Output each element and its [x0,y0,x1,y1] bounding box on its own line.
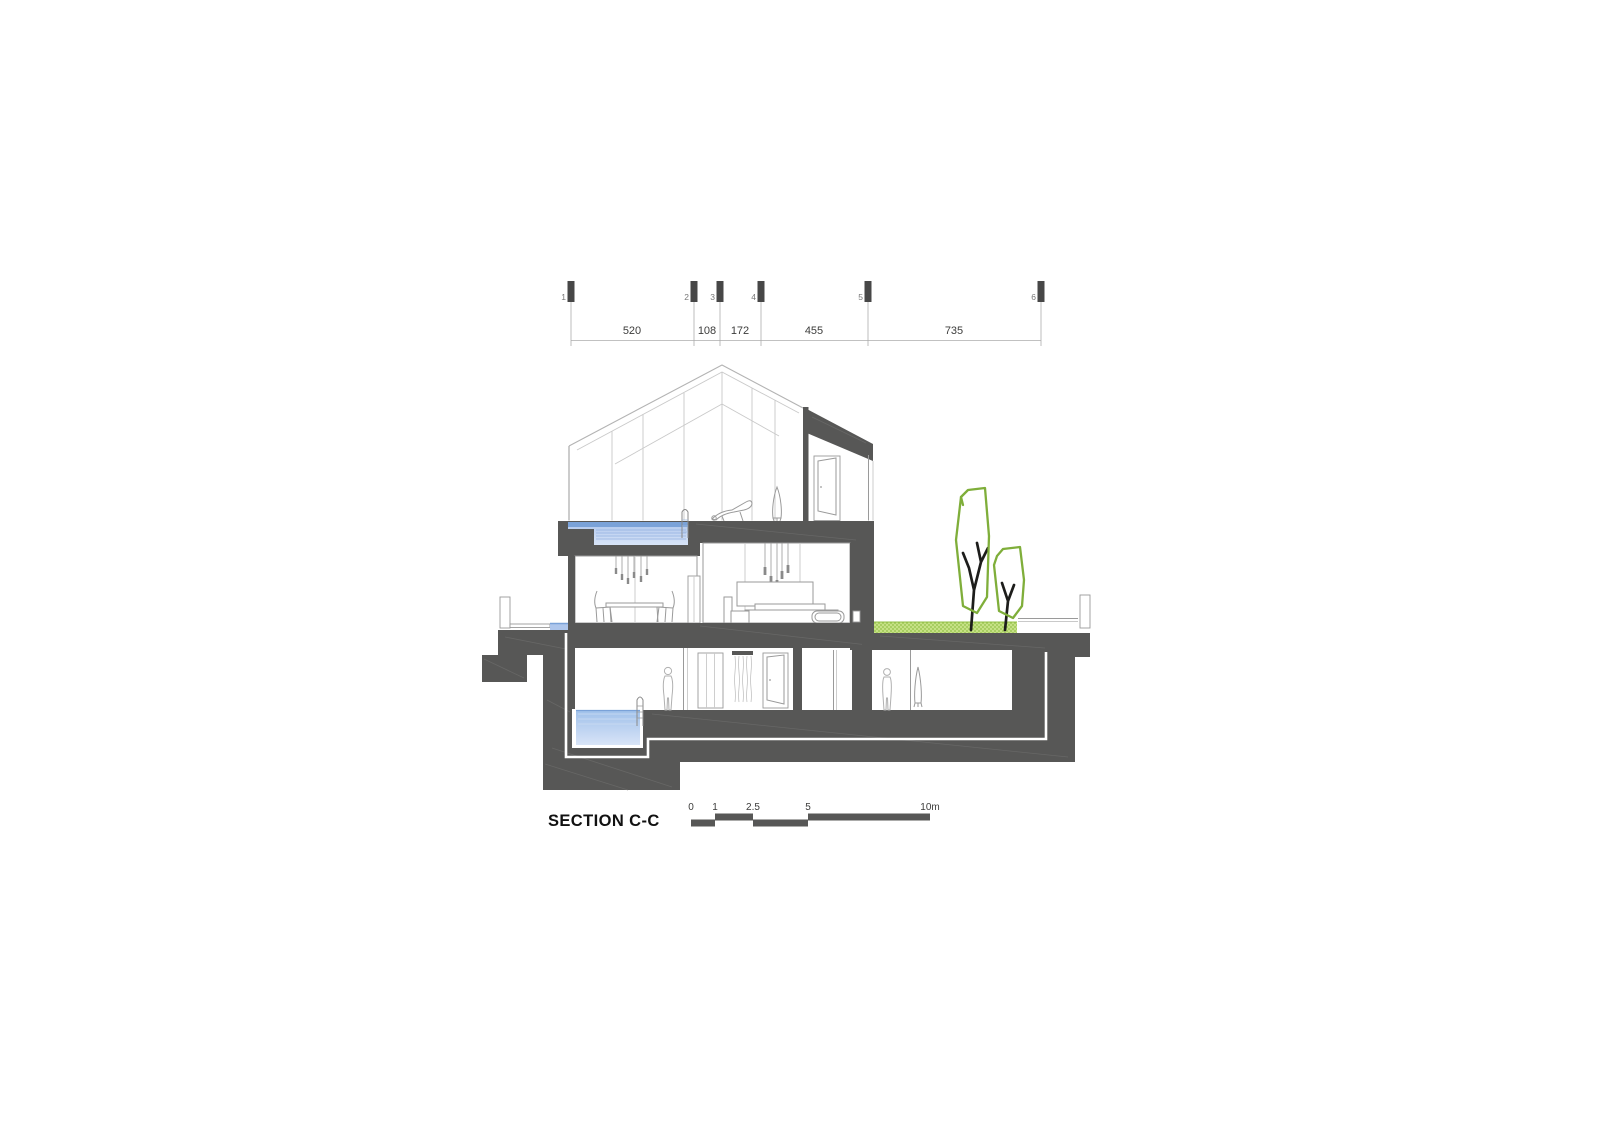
grid-marker-3 [717,281,724,302]
scale-label-2: 2.5 [746,802,760,813]
dim-label-3: 172 [731,325,749,337]
left-parapet [500,597,510,628]
dimension-strip: 1 2 3 4 5 6 520 108 172 455 735 [561,281,1044,346]
grid-marker-4 [758,281,765,302]
grid-marker-1 [568,281,575,302]
basement-right-wall-fill [1012,650,1050,710]
basement-partition-2 [834,650,837,710]
basement-pool [572,697,643,748]
roof-outline [569,365,803,521]
grid-marker-label-2: 2 [684,292,689,302]
ground-line [1018,619,1078,622]
dim-label-5: 735 [945,325,963,337]
dim-label-4: 455 [805,325,823,337]
cabinet-wall [688,576,700,623]
left-terrace [500,597,568,630]
basement-wall-2 [793,648,802,710]
basement-wall-3 [852,650,872,710]
tree-icon-small [994,547,1024,630]
headboard-shelf [737,582,813,606]
bathtub [812,611,844,623]
shower-curtain [732,651,753,702]
grid-marker-5 [865,281,872,302]
section-drawing-canvas: 1 2 3 4 5 6 520 108 172 455 735 [0,0,1600,1131]
living-room [703,543,850,623]
rooftop-pool [568,510,688,546]
right-parapet [1080,595,1090,628]
terrace-door [814,456,840,521]
grid-marker-label-1: 1 [561,292,566,302]
pendant-lights-dining [615,556,648,584]
section-drawing: 1 2 3 4 5 6 520 108 172 455 735 [0,0,1600,1131]
scale-label-3: 5 [805,802,811,813]
ground-slab [558,623,874,648]
grid-marker-label-4: 4 [751,292,756,302]
dining-room [575,556,700,623]
wardrobe-cabinet [698,653,723,708]
grid-marker-label-6: 6 [1031,292,1036,302]
section-title: SECTION C-C [548,812,660,830]
wall-cap [853,611,860,622]
scale-label-4: 10m [920,802,939,813]
scale-bar: 0 1 2.5 5 10m [688,802,940,827]
pendant-lights-living [764,543,790,588]
basement-partition-1 [684,648,688,710]
plant-figure-basement [914,667,922,707]
dim-label-1: 520 [623,325,641,337]
basement-door [763,653,788,708]
tree-icon-large [956,488,989,630]
right-retaining-wall [1050,633,1075,762]
dining-table [606,603,663,622]
bearing-walls [558,543,874,650]
scale-label-1: 1 [712,802,718,813]
terrace-deck [510,624,550,628]
cypress-plant-icon [773,487,782,521]
grid-marker-2 [691,281,698,302]
lounge-chair-icon [712,501,752,521]
person-figure-basement-left [663,667,672,710]
person-figure-basement-right [883,669,892,710]
dim-label-2: 108 [698,325,716,337]
scale-label-0: 0 [688,802,694,813]
grid-marker-6 [1038,281,1045,302]
grid-marker-label-5: 5 [858,292,863,302]
grid-marker-label-3: 3 [710,292,715,302]
